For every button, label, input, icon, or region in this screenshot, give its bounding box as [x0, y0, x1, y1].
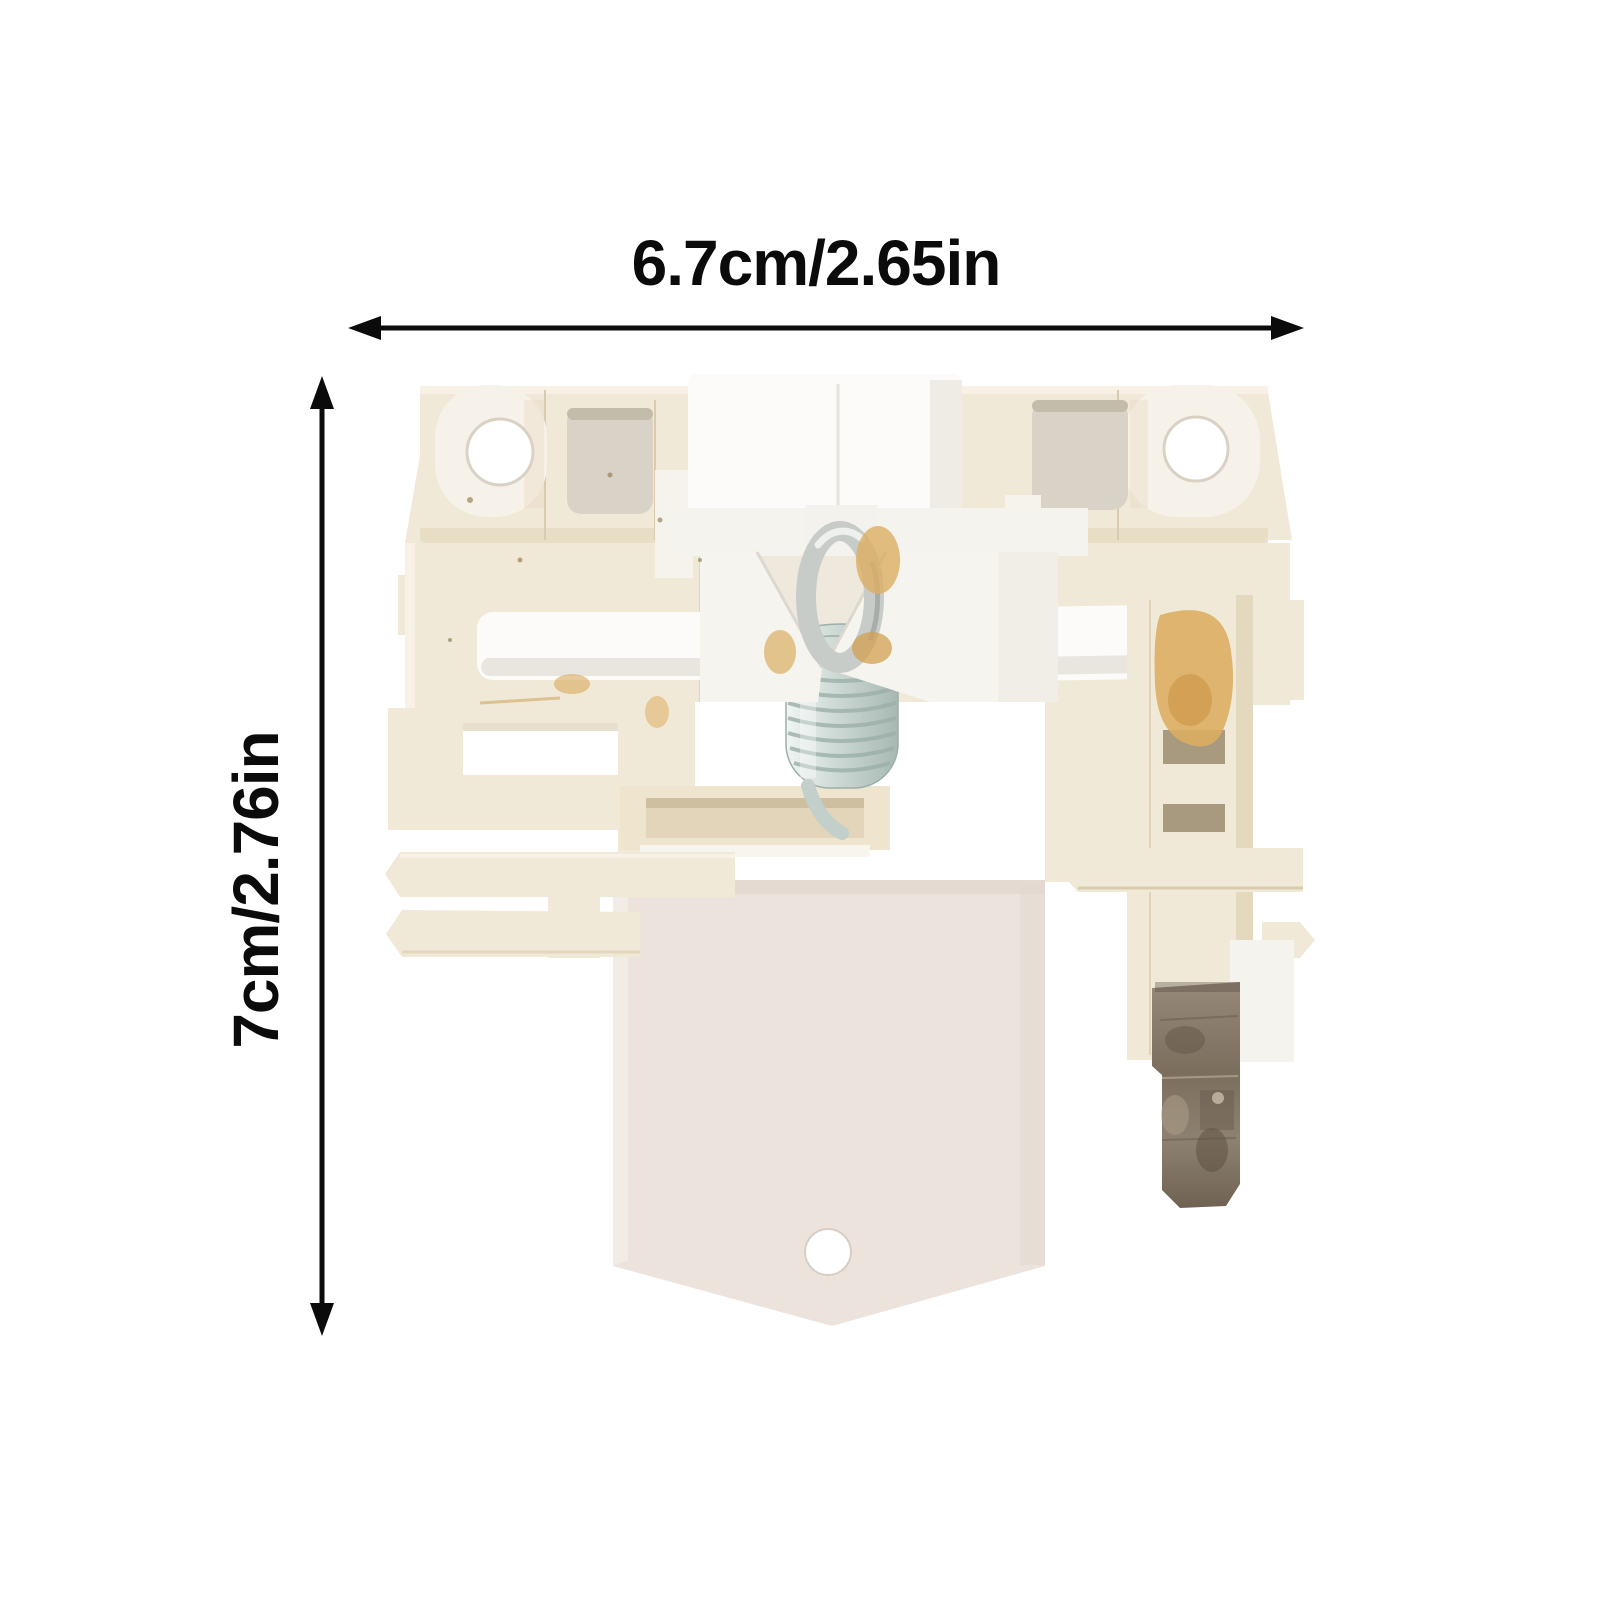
- inner-frame: [620, 786, 890, 857]
- pocket-right: [1032, 400, 1128, 510]
- lever-bar-right: [1058, 848, 1303, 892]
- mounting-ear-right: [1122, 385, 1260, 517]
- mount-hole-right: [1164, 417, 1228, 481]
- slot-lower: [1163, 804, 1225, 832]
- pocket-left: [567, 408, 653, 514]
- terminal-blade: [1152, 982, 1240, 1208]
- horizontal-dimension-arrow: [348, 316, 1304, 340]
- bottom-plate: [613, 880, 1045, 1326]
- vertical-dimension-arrow: [310, 376, 334, 1336]
- plate-hole: [805, 1229, 851, 1275]
- product-photo-page: 6.7cm/2.65in 7cm/2.76in: [0, 0, 1600, 1600]
- mount-hole-left: [467, 419, 533, 485]
- mounting-ear-left: [435, 385, 547, 517]
- slider-block: [688, 374, 962, 524]
- product-illustration: [0, 0, 1600, 1600]
